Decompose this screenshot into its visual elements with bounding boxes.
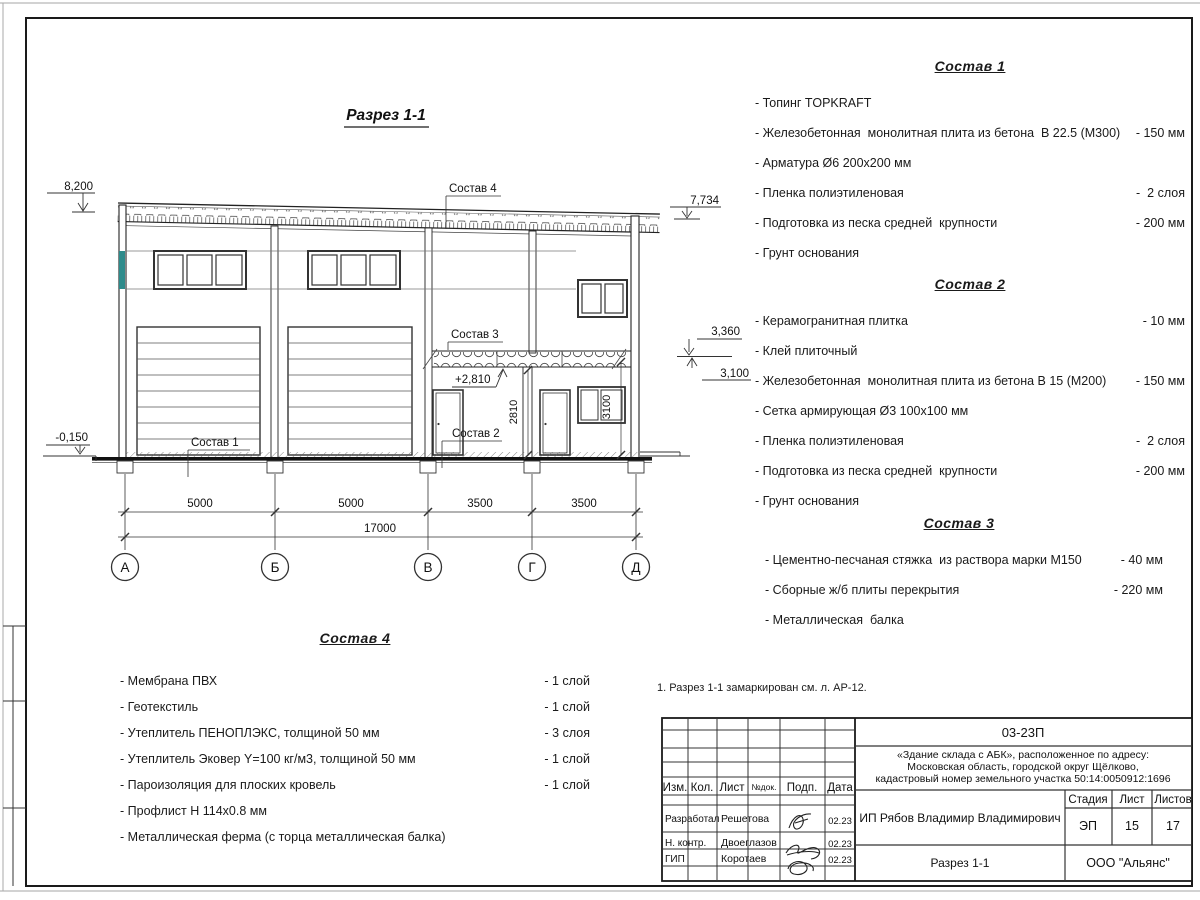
dim-17000: 17000 (364, 523, 396, 535)
list-item: - Металлическая балка (765, 605, 1163, 635)
row1-date: 02.23 (828, 816, 852, 827)
list-item: - Металлическая ферма (с торца металличе… (120, 824, 590, 850)
list-item: - Грунт основания (755, 486, 1185, 516)
list-item: - Железобетонная монолитная плита из бет… (755, 366, 1185, 396)
sheet-note: 1. Разрез 1-1 замаркирован см. л. АР-12. (657, 682, 867, 694)
dim-2810: 2810 (508, 400, 520, 424)
list-item: - Клей плиточный (755, 336, 1185, 366)
row2-role: Н. контр. (665, 838, 706, 849)
list-item: - Железобетонная монолитная плита из бет… (755, 118, 1185, 148)
level-3100: 3,100 (720, 368, 749, 380)
door-right-2 (540, 390, 570, 455)
callout-sostav-3: Состав 3 (451, 329, 499, 341)
list-item: - Мембрана ПВХ- 1 слой (120, 668, 590, 694)
col-izm: Изм. (663, 782, 688, 794)
list-item: - Геотекстиль- 1 слой (120, 694, 590, 720)
row3-date: 02.23 (828, 855, 852, 866)
list-item: - Керамогранитная плитка- 10 мм (755, 306, 1185, 336)
window-upper-right (578, 280, 627, 317)
list-item: - Топинг TOPKRAFT (755, 88, 1185, 118)
row2-name: Двоеглазов (721, 837, 777, 849)
garage-door-2 (288, 327, 412, 455)
dim-5000-1: 5000 (187, 498, 213, 510)
stage-value: ЭП (1079, 819, 1097, 833)
row3-name: Коротаев (721, 853, 767, 865)
dimension-lines (118, 474, 643, 550)
list-item: - Утеплитель Эковер Y=100 кг/м3, толщино… (120, 746, 590, 772)
level-minus-0150: -0,150 (55, 432, 88, 444)
sheet-title: Разрез 1-1 (931, 856, 990, 870)
list-item: - Подготовка из песка средней крупности-… (755, 456, 1185, 486)
sheet-label: Лист (1120, 794, 1146, 806)
list-item: - Арматура Ø6 200х200 мм (755, 148, 1185, 178)
dim-3500-2: 3500 (571, 498, 597, 510)
callout-sostav-2: Состав 2 (452, 428, 500, 440)
level-8200: 8,200 (64, 181, 93, 193)
project-line-2: Московская область, городской округ Щёлк… (907, 761, 1139, 773)
section-drawing: Разрез 1-1 (43, 107, 751, 581)
composition-list-2: Состав 2 - Керамогранитная плитка- 10 мм… (755, 276, 1185, 516)
stage-label: Стадия (1068, 794, 1107, 806)
axis-v: В (423, 560, 432, 575)
composition-4-title: Состав 4 (120, 630, 590, 646)
composition-2-title: Состав 2 (755, 276, 1185, 292)
row1-name: Решетова (721, 813, 769, 825)
project-line-3: кадастровый номер земельного участка 50:… (875, 773, 1170, 785)
axis-b: Б (271, 560, 280, 575)
list-item: - Сборные ж/б плиты перекрытия- 220 мм (765, 575, 1163, 605)
dim-5000-2: 5000 (338, 498, 364, 510)
project-description: «Здание склада с АБК», расположенное по … (875, 749, 1170, 785)
col-kol: Кол. (691, 782, 714, 794)
drawing-sheet: { "section": { "title": "Разрез 1-1", "a… (0, 0, 1200, 900)
row3-role: ГИП (665, 854, 685, 865)
level-3360: 3,360 (711, 326, 740, 338)
door-right-1 (433, 390, 463, 455)
composition-list-4: Состав 4 - Мембрана ПВХ- 1 слой - Геотек… (120, 630, 590, 850)
ground-floor-slab (43, 452, 690, 463)
dim-3500-1: 3500 (467, 498, 493, 510)
list-item: - Профлист Н 114х0.8 мм (120, 798, 590, 824)
row1-role: Разработал (665, 813, 720, 825)
sheets-label: Листов (1154, 794, 1191, 806)
list-item: - Грунт основания (755, 238, 1185, 268)
col-podp: Подп. (787, 782, 818, 794)
sheets-total: 17 (1166, 819, 1180, 833)
level-7734: 7,734 (690, 195, 719, 207)
title-block: Изм. Кол. Лист №док. Подп. Дата Разработ… (662, 718, 1192, 881)
sheet-number: 15 (1125, 819, 1139, 833)
list-item: - Цементно-песчаная стяжка из раствора м… (765, 545, 1163, 575)
list-item: - Сетка армирующая Ø3 100х100 мм (755, 396, 1185, 426)
axis-d: Д (631, 560, 640, 575)
wall-section-insulation (119, 251, 125, 289)
list-item: - Пароизоляция для плоских кровель- 1 сл… (120, 772, 590, 798)
axis-a: А (120, 560, 129, 575)
list-item: - Утеплитель ПЕНОПЛЭКС, толщиной 50 мм- … (120, 720, 590, 746)
composition-list-3: Состав 3 - Цементно-песчаная стяжка из р… (755, 515, 1163, 635)
dim-3100: 3100 (601, 395, 613, 419)
col-list: Лист (720, 782, 746, 794)
dimension-labels: 5000 5000 3500 3500 17000 (187, 498, 597, 535)
company-name: ООО "Альянс" (1086, 856, 1170, 870)
composition-list-1: Состав 1 - Топинг TOPKRAFT - Железобетон… (755, 58, 1185, 268)
axis-g: Г (528, 560, 536, 575)
window-group-2 (308, 251, 400, 289)
project-line-1: «Здание склада с АБК», расположенное по … (897, 749, 1149, 761)
col-data: Дата (827, 782, 853, 794)
callout-sostav-1: Состав 1 (191, 437, 239, 449)
left-margin-table (3, 626, 26, 886)
garage-door-1 (137, 327, 260, 455)
floor-slab-hollow-core (423, 349, 631, 369)
callout-sostav-4: Состав 4 (449, 183, 497, 195)
composition-3-title: Состав 3 (755, 515, 1163, 531)
row2-date: 02.23 (828, 839, 852, 850)
list-item: - Подготовка из песка средней крупности-… (755, 208, 1185, 238)
col-ndok: №док. (752, 782, 777, 792)
level-plus-2810: +2,810 (455, 374, 491, 386)
list-item: - Пленка полиэтиленовая- 2 слоя (755, 426, 1185, 456)
doc-number: 03-23П (1002, 725, 1045, 740)
section-title: Разрез 1-1 (346, 107, 426, 124)
window-group-1 (154, 251, 246, 289)
roof (118, 203, 660, 237)
composition-1-title: Состав 1 (755, 58, 1185, 74)
client-name: ИП Рябов Владимир Владимирович (859, 811, 1060, 825)
list-item: - Пленка полиэтиленовая- 2 слоя (755, 178, 1185, 208)
axis-bubbles: А Б В Г Д (112, 554, 650, 581)
